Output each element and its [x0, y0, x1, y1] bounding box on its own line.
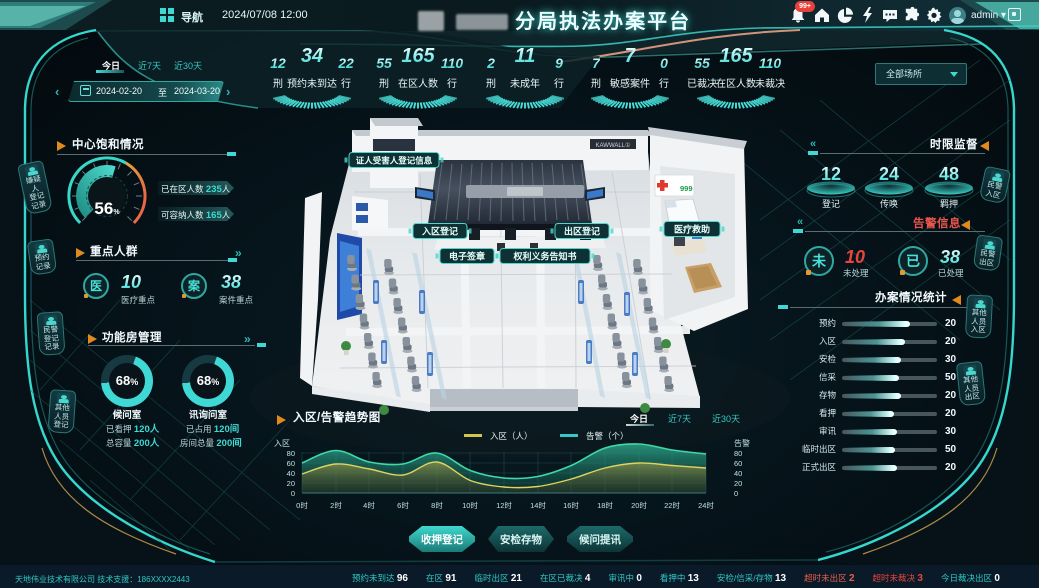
svg-text:40: 40 [287, 469, 295, 478]
svg-text:20: 20 [287, 479, 295, 488]
svg-text:14时: 14时 [530, 500, 546, 510]
svg-text:入区: 入区 [274, 439, 290, 448]
svg-text:6时: 6时 [397, 500, 409, 510]
svg-text:24时: 24时 [698, 500, 714, 510]
svg-text:0: 0 [734, 489, 738, 498]
svg-text:40: 40 [734, 469, 742, 478]
svg-text:60: 60 [734, 459, 742, 468]
svg-text:4时: 4时 [363, 500, 375, 510]
svg-text:10时: 10时 [462, 500, 478, 510]
svg-text:12时: 12时 [496, 500, 512, 510]
svg-text:20时: 20时 [631, 500, 647, 510]
svg-text:8时: 8时 [431, 500, 443, 510]
svg-text:16时: 16时 [563, 500, 579, 510]
svg-text:20: 20 [734, 479, 742, 488]
svg-text:80: 80 [734, 449, 742, 458]
svg-text:告警: 告警 [734, 438, 750, 448]
svg-text:0时: 0时 [296, 500, 308, 510]
svg-text:0: 0 [291, 489, 295, 498]
svg-text:22时: 22时 [664, 500, 680, 510]
svg-text:18时: 18时 [597, 500, 613, 510]
svg-text:80: 80 [287, 449, 295, 458]
svg-text:2时: 2时 [330, 500, 342, 510]
svg-text:60: 60 [287, 459, 295, 468]
